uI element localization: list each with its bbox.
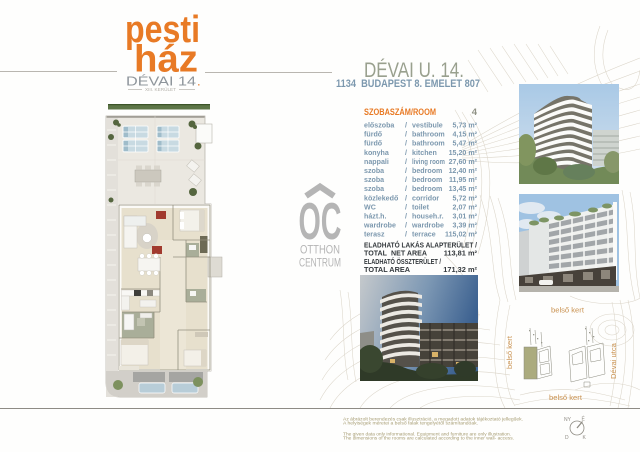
svg-text:/: / [405, 158, 407, 166]
svg-text:/: / [405, 149, 407, 157]
svg-text:171,32 m²: 171,32 m² [443, 265, 477, 274]
svg-text:SZOBASZÁM/ROOM: SZOBASZÁM/ROOM [364, 107, 436, 118]
svg-text:OTTHON: OTTHON [300, 245, 340, 257]
svg-text:É: É [582, 416, 586, 423]
svg-text:.: . [197, 74, 201, 89]
svg-text:előszoba: előszoba [364, 122, 394, 130]
svg-text:/: / [405, 213, 407, 221]
svg-text:11,95 m²: 11,95 m² [449, 176, 478, 184]
svg-text:OC: OC [299, 193, 342, 251]
svg-text:belső kert: belső kert [551, 306, 585, 315]
svg-text:13,45 m²: 13,45 m² [449, 185, 478, 193]
svg-text:wardrobe: wardrobe [363, 222, 396, 230]
svg-text:/: / [405, 222, 407, 230]
svg-text:szoba: szoba [364, 167, 384, 175]
svg-text:NY: NY [564, 417, 572, 423]
svg-text:/: / [405, 203, 407, 211]
svg-text:házt.h.: házt.h. [364, 213, 386, 221]
svg-text:terasz: terasz [364, 231, 385, 239]
svg-text:The dimensions of the rooms ar: The dimensions of the rooms are calculat… [343, 436, 514, 441]
svg-text:terrace: terrace [412, 231, 436, 239]
svg-text:5,47 m²: 5,47 m² [453, 140, 478, 148]
svg-text:bathroom: bathroom [412, 140, 445, 148]
svg-text:A helyiségek méretei a belső f: A helyiségek méretei a belső falak tenge… [343, 421, 478, 426]
svg-text:2,07 m²: 2,07 m² [453, 203, 478, 211]
svg-text:4,15 m²: 4,15 m² [453, 131, 478, 139]
svg-text:WC: WC [364, 203, 376, 211]
svg-text:kitchen: kitchen [412, 149, 437, 157]
svg-text:27,60 m²: 27,60 m² [449, 158, 478, 166]
svg-text:CENTRUM: CENTRUM [299, 258, 341, 270]
svg-text:nappali: nappali [364, 158, 389, 166]
svg-text:wardrobe: wardrobe [411, 222, 444, 230]
svg-text:/: / [405, 122, 407, 130]
svg-text:bedroom: bedroom [412, 167, 442, 175]
svg-text:/: / [405, 194, 407, 202]
svg-text:bathroom: bathroom [412, 131, 445, 139]
svg-text:K: K [583, 435, 587, 441]
svg-text:/: / [405, 185, 407, 193]
svg-text:113,81 m²: 113,81 m² [444, 249, 478, 258]
svg-text:fürdő: fürdő [364, 140, 383, 148]
svg-text:5,72 m²: 5,72 m² [453, 194, 478, 202]
svg-text:XIII. KERÜLET: XIII. KERÜLET [145, 86, 176, 92]
svg-text:/: / [405, 176, 407, 184]
svg-text:1134 BUDAPEST 8. EMELET 807: 1134 BUDAPEST 8. EMELET 807 [336, 78, 480, 90]
svg-text:közlekedő: közlekedő [364, 194, 399, 202]
svg-text:TOTAL AREA: TOTAL AREA [364, 265, 411, 274]
svg-text:3,01 m²: 3,01 m² [453, 213, 478, 221]
svg-text:/: / [405, 231, 407, 239]
svg-text:living room: living room [412, 158, 445, 166]
svg-text:belső kert: belső kert [549, 393, 583, 402]
svg-text:konyha: konyha [364, 149, 389, 157]
svg-text:szoba: szoba [364, 176, 384, 184]
svg-text:/: / [405, 167, 407, 175]
svg-text:belső kert: belső kert [505, 335, 514, 369]
svg-text:szoba: szoba [364, 185, 384, 193]
svg-text:/: / [405, 140, 407, 148]
svg-text:/: / [405, 131, 407, 139]
svg-text:Dévai utca: Dévai utca [609, 342, 618, 379]
svg-text:househ.r.: househ.r. [412, 213, 444, 221]
svg-text:15,20 m²: 15,20 m² [449, 149, 478, 157]
svg-text:12,40 m²: 12,40 m² [449, 167, 478, 175]
svg-text:3,39 m²: 3,39 m² [453, 222, 478, 230]
svg-text:D: D [565, 435, 569, 441]
svg-text:toilet: toilet [412, 203, 430, 211]
svg-text:corridor: corridor [412, 194, 439, 202]
svg-text:vestibule: vestibule [412, 122, 443, 130]
svg-text:fürdő: fürdő [364, 131, 383, 139]
svg-text:4: 4 [472, 107, 478, 118]
svg-text:bedroom: bedroom [412, 185, 442, 193]
svg-text:bedroom: bedroom [412, 176, 442, 184]
svg-text:5,73 m²: 5,73 m² [453, 122, 478, 130]
svg-text:115,02 m²: 115,02 m² [445, 231, 478, 239]
